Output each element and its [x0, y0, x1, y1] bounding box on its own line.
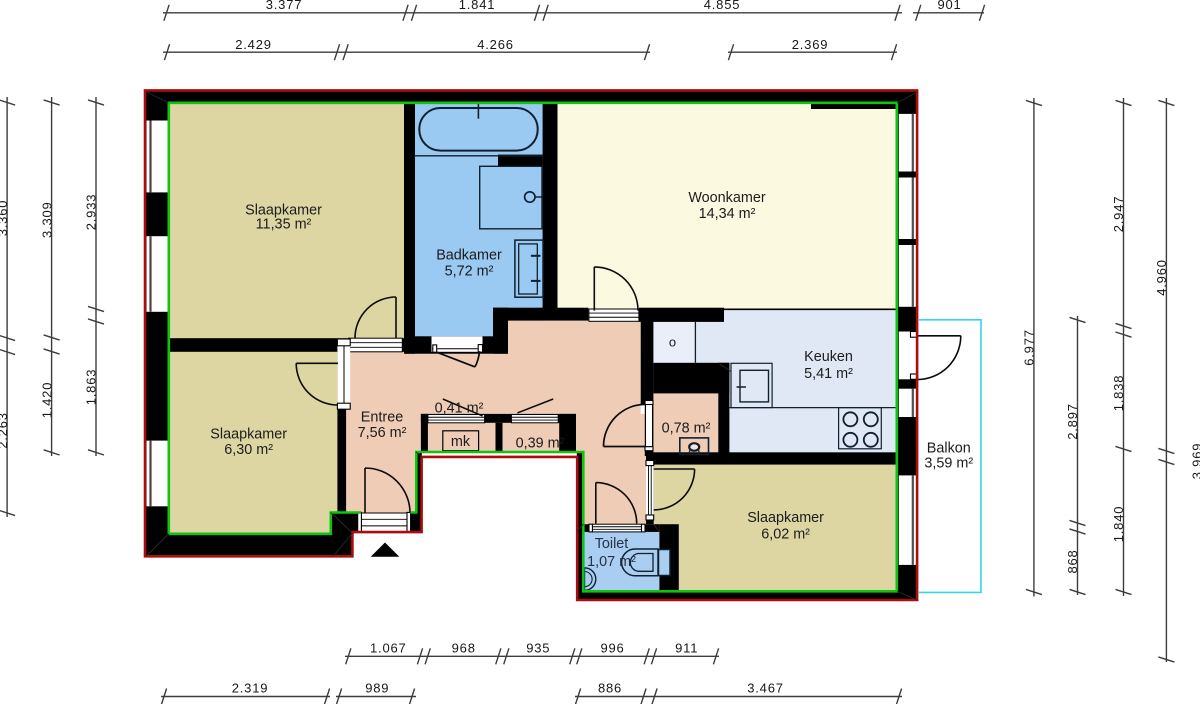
svg-text:901: 901 [937, 0, 961, 12]
svg-text:0,39 m²: 0,39 m² [516, 436, 565, 452]
svg-text:3.969: 3.969 [1190, 443, 1200, 480]
svg-text:1.067: 1.067 [370, 640, 407, 655]
svg-text:Balkon: Balkon [927, 441, 971, 457]
svg-text:1,07 m²: 1,07 m² [587, 554, 636, 570]
svg-text:2.319: 2.319 [232, 681, 269, 696]
svg-text:935: 935 [526, 640, 550, 655]
svg-text:3.309: 3.309 [39, 201, 54, 238]
svg-text:2.429: 2.429 [235, 37, 272, 52]
svg-text:3,59 m²: 3,59 m² [924, 456, 973, 472]
svg-text:2.369: 2.369 [792, 37, 829, 52]
svg-text:1.420: 1.420 [39, 382, 54, 419]
svg-text:1.863: 1.863 [84, 369, 99, 406]
svg-text:2.263: 2.263 [0, 412, 10, 449]
svg-text:Keuken: Keuken [804, 349, 853, 365]
svg-text:2.933: 2.933 [84, 194, 99, 231]
svg-text:7,56 m²: 7,56 m² [358, 425, 407, 441]
svg-text:911: 911 [675, 640, 698, 655]
svg-text:5,72 m²: 5,72 m² [445, 263, 494, 279]
svg-text:3.467: 3.467 [747, 681, 784, 696]
svg-text:0,78 m²: 0,78 m² [662, 421, 711, 437]
svg-text:o: o [669, 335, 676, 350]
svg-text:968: 968 [452, 640, 476, 655]
svg-text:886: 886 [598, 681, 622, 696]
svg-text:11,35 m²: 11,35 m² [256, 217, 312, 233]
svg-text:mk: mk [451, 434, 471, 450]
svg-text:6,02 m²: 6,02 m² [761, 527, 810, 543]
svg-text:868: 868 [1065, 549, 1080, 573]
svg-text:Slaapkamer: Slaapkamer [747, 510, 824, 526]
svg-text:4.855: 4.855 [704, 0, 741, 12]
svg-text:0,41 m²: 0,41 m² [435, 401, 484, 417]
svg-text:2.897: 2.897 [1065, 403, 1080, 440]
svg-text:2.947: 2.947 [1111, 196, 1126, 233]
svg-text:1.841: 1.841 [459, 0, 496, 12]
svg-text:6,30 m²: 6,30 m² [224, 442, 273, 458]
svg-text:Toilet: Toilet [595, 536, 629, 552]
svg-text:3.360: 3.360 [0, 200, 10, 237]
svg-text:6.977: 6.977 [1021, 329, 1036, 366]
svg-text:5,41 m²: 5,41 m² [804, 366, 853, 382]
svg-text:4.960: 4.960 [1154, 259, 1169, 296]
svg-text:989: 989 [365, 681, 389, 696]
svg-text:Entree: Entree [361, 410, 403, 426]
svg-text:3.377: 3.377 [266, 0, 303, 12]
svg-text:Slaapkamer: Slaapkamer [210, 426, 287, 442]
svg-text:Woonkamer: Woonkamer [688, 190, 766, 206]
svg-text:14,34 m²: 14,34 m² [699, 206, 756, 222]
svg-text:4.266: 4.266 [477, 37, 514, 52]
svg-text:1.838: 1.838 [1111, 375, 1126, 412]
svg-text:1.840: 1.840 [1111, 506, 1126, 543]
svg-text:996: 996 [600, 640, 624, 655]
svg-text:Badkamer: Badkamer [436, 248, 502, 264]
